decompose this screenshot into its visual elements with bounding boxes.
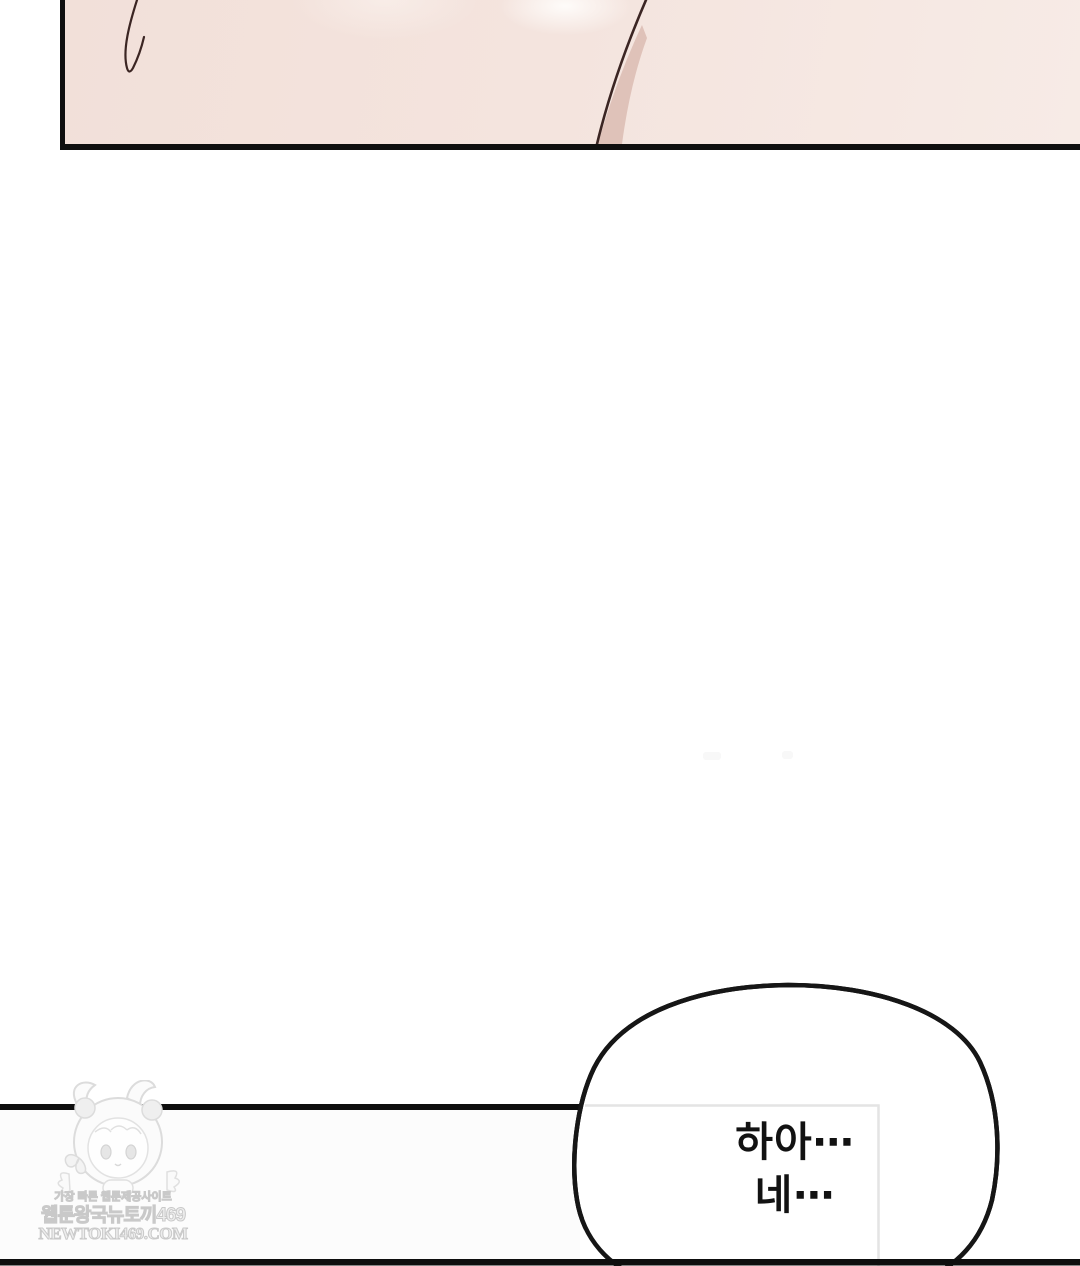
- hair-shadow-shape: [598, 25, 647, 144]
- dialogue-text: 하아⋯ 네⋯: [640, 1116, 950, 1222]
- watermark-site-name: 웹툰왕국뉴토끼469: [25, 1200, 201, 1227]
- panel-artwork-hair-strands: [65, 0, 1080, 144]
- faint-artifact: [703, 752, 721, 760]
- next-panel-top-border: [0, 1259, 1080, 1266]
- dialogue-line-1: 하아⋯: [640, 1116, 950, 1169]
- faint-artifact: [782, 751, 793, 759]
- mascot-illustration-icon: [55, 1080, 185, 1198]
- mascot-panda-ear-left: [75, 1098, 95, 1118]
- webtoon-page: 하아⋯ 네⋯ 가장 빠른 웹툰제공사이트 웹툰왕국뉴토끼469: [0, 0, 1080, 1266]
- mascot-eye-right: [126, 1145, 136, 1159]
- hair-strand-hook: [125, 0, 144, 72]
- mascot-eye-left: [101, 1145, 111, 1159]
- mascot-panda-ear-right: [142, 1100, 162, 1120]
- comic-panel-top: [60, 0, 1080, 150]
- mascot-face: [88, 1118, 148, 1178]
- watermark-site-url: NEWTOKI469.COM: [30, 1224, 196, 1244]
- dialogue-line-2: 네⋯: [640, 1169, 950, 1222]
